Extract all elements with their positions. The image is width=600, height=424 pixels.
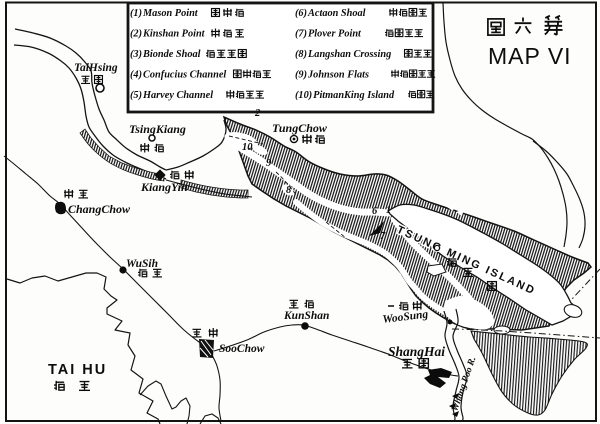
svg-text:6: 6 <box>372 206 378 217</box>
svg-text:(3)Bionde Shoal: (3)Bionde Shoal <box>130 49 201 60</box>
svg-text:(5)Harvey Channel: (5)Harvey Channel <box>130 90 213 101</box>
svg-text:(1)Mason Point: (1)Mason Point <box>130 8 199 19</box>
svg-text:8: 8 <box>286 185 292 196</box>
svg-text:ShangHai: ShangHai <box>388 344 445 359</box>
svg-text:KunShan: KunShan <box>283 310 329 322</box>
svg-text:(4)Confucius Channel: (4)Confucius Channel <box>130 70 226 81</box>
svg-text:ChangChow: ChangChow <box>68 202 131 216</box>
svg-text:(7)Plover Point: (7)Plover Point <box>295 29 362 40</box>
svg-text:9: 9 <box>266 158 272 169</box>
svg-text:TungChow: TungChow <box>272 121 328 135</box>
svg-text:WuSih: WuSih <box>126 258 158 270</box>
svg-text:TaiHsing: TaiHsing <box>74 62 118 74</box>
svg-text:(10)PitmanKing Island: (10)PitmanKing Island <box>295 90 395 101</box>
svg-text:7: 7 <box>380 231 386 242</box>
svg-text:MAP VI: MAP VI <box>488 43 572 69</box>
svg-text:(9)Johnson Flats: (9)Johnson Flats <box>295 70 369 81</box>
svg-text:2: 2 <box>254 108 261 119</box>
svg-text:(2)Kinshan Point: (2)Kinshan Point <box>130 29 206 40</box>
svg-text:1: 1 <box>386 205 391 216</box>
svg-text:(8)Langshan Crossing: (8)Langshan Crossing <box>295 49 391 60</box>
svg-text:TAI HU: TAI HU <box>48 362 107 378</box>
svg-text:10: 10 <box>242 142 253 153</box>
svg-text:(6)Actaon Shoal: (6)Actaon Shoal <box>295 8 366 19</box>
svg-text:KiangYin: KiangYin <box>140 180 188 194</box>
svg-text:TsingKiang: TsingKiang <box>129 122 186 136</box>
svg-text:SooChow: SooChow <box>219 343 265 355</box>
